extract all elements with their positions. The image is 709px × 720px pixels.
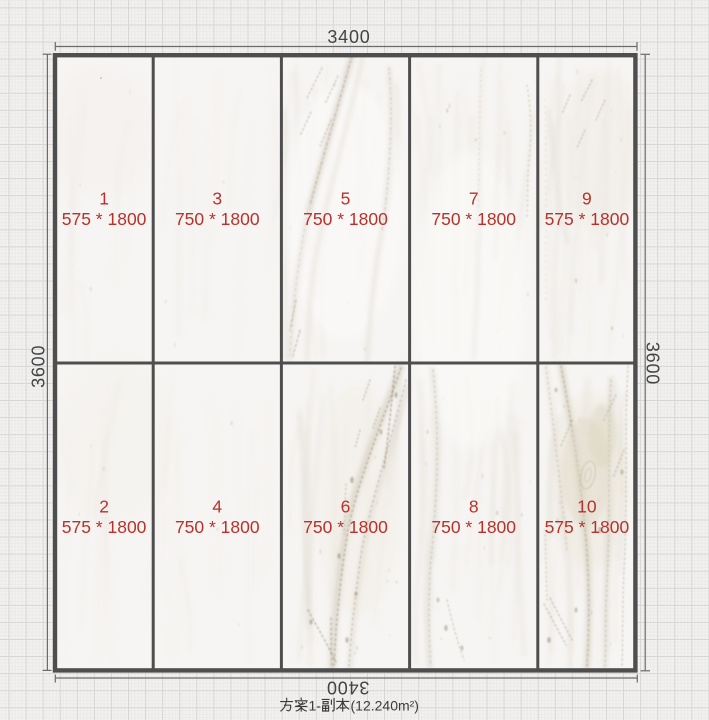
svg-text:8: 8 [469, 496, 479, 516]
svg-text:7: 7 [469, 188, 479, 208]
svg-text:3400: 3400 [326, 678, 369, 698]
svg-text:6: 6 [341, 496, 351, 516]
svg-text:(12.240m²): (12.240m²) [351, 698, 419, 714]
svg-text:3400: 3400 [327, 27, 370, 47]
svg-text:750 * 1800: 750 * 1800 [431, 517, 516, 537]
svg-text:575 * 1800: 575 * 1800 [545, 517, 630, 537]
svg-text:4: 4 [212, 496, 222, 516]
svg-text:10: 10 [577, 496, 597, 516]
svg-text:750 * 1800: 750 * 1800 [175, 209, 260, 229]
svg-text:750 * 1800: 750 * 1800 [303, 517, 388, 537]
svg-text:575 * 1800: 575 * 1800 [62, 517, 147, 537]
svg-text:9: 9 [582, 188, 592, 208]
svg-text:1: 1 [99, 188, 109, 208]
svg-text:3600: 3600 [28, 345, 48, 388]
svg-text:575 * 1800: 575 * 1800 [62, 209, 147, 229]
svg-text:3: 3 [212, 188, 222, 208]
svg-text:5: 5 [341, 188, 351, 208]
svg-text:575 * 1800: 575 * 1800 [545, 209, 630, 229]
svg-text:3600: 3600 [643, 342, 663, 385]
svg-text:2: 2 [99, 496, 109, 516]
svg-text:750 * 1800: 750 * 1800 [431, 209, 516, 229]
svg-text:750 * 1800: 750 * 1800 [175, 517, 260, 537]
svg-text:750 * 1800: 750 * 1800 [303, 209, 388, 229]
svg-text:1-: 1- [309, 698, 322, 714]
